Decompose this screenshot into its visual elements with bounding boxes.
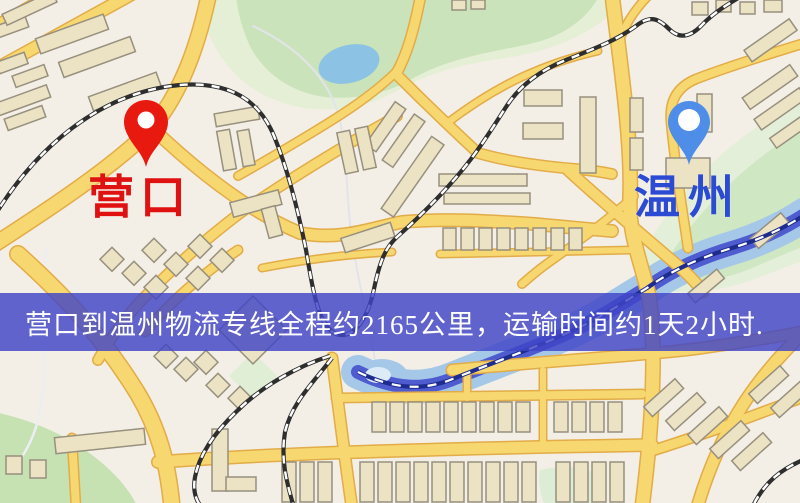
map-background xyxy=(0,0,800,503)
destination-label: 温州 xyxy=(634,174,742,222)
destination-pin[interactable] xyxy=(664,99,714,169)
origin-pin-shape xyxy=(124,100,168,167)
origin-label: 营口 xyxy=(88,174,192,222)
origin-pin[interactable] xyxy=(120,98,172,170)
destination-pin-hole xyxy=(678,109,700,131)
route-info-banner: 营口到温州物流专线全程约2165公里，运输时间约1天2小时. xyxy=(0,293,800,351)
map-view: 营口 温州 营口到温州物流专线全程约2165公里，运输时间约1天2小时. xyxy=(0,0,800,503)
route-info-text: 营口到温州物流专线全程约2165公里，运输时间约1天2小时. xyxy=(25,303,764,342)
origin-pin-hole xyxy=(138,112,155,129)
